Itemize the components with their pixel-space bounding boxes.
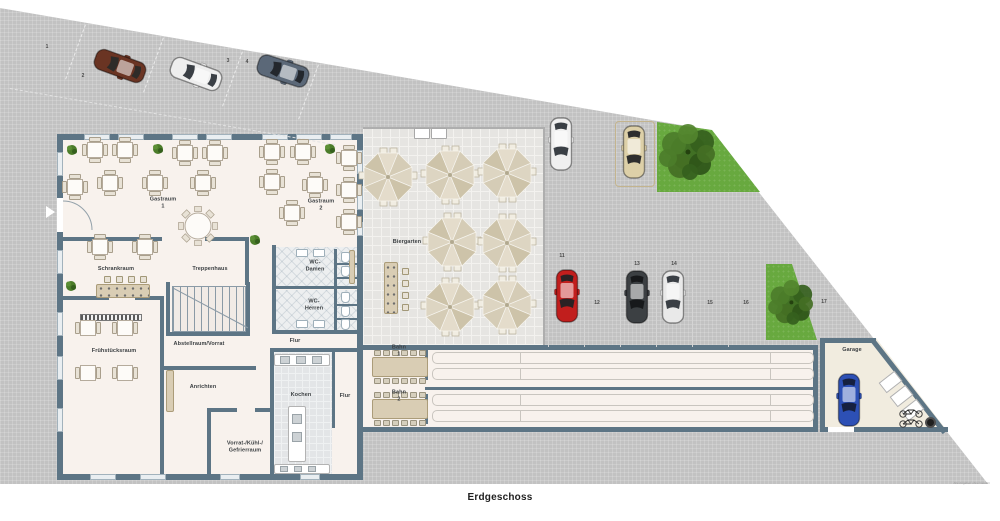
window [300, 474, 320, 480]
bar-counter [96, 284, 150, 298]
bahn-chair [419, 420, 426, 426]
parking-number-12: 12 [594, 300, 600, 306]
wall-segment [334, 263, 359, 265]
bahn-chair [392, 378, 399, 384]
dining-table [112, 137, 138, 163]
car-garage-blue [836, 372, 862, 428]
room-label-biergarten: Biergarten [393, 239, 422, 246]
wall-segment [425, 387, 815, 390]
wall-segment [363, 427, 813, 432]
cabinet [166, 370, 174, 412]
parking-number-2: 2 [82, 73, 85, 79]
parasol-table [422, 212, 482, 272]
parking-number-1: 1 [46, 44, 49, 50]
window [220, 474, 240, 480]
parking-divider [692, 252, 693, 347]
window [57, 152, 63, 176]
kitchen-appliance [312, 356, 322, 364]
wall-segment [164, 366, 256, 370]
parking-divider [548, 252, 549, 347]
counter-appliance [308, 466, 316, 472]
breakfast-table [112, 365, 138, 381]
biergarten-counter [384, 262, 398, 314]
bowling-lane-pin-line [770, 353, 771, 363]
bahn-chair [410, 378, 417, 384]
wall-segment [272, 286, 357, 289]
parking-number-17: 17 [821, 299, 827, 305]
bahn-chair [419, 392, 426, 398]
bowling-lane-pin-line [770, 411, 771, 421]
bahn-chair [374, 378, 381, 384]
room-label-flur-2: Flur [340, 393, 351, 400]
room-label-bahn-1: Bahn 1 [392, 345, 406, 358]
dining-table [302, 172, 328, 198]
dining-table [202, 140, 228, 166]
room-label-flur-1: Flur [290, 338, 301, 345]
dining-table [336, 209, 362, 235]
window [57, 312, 63, 336]
dining-table [190, 170, 216, 196]
parking-number-4: 4 [246, 59, 249, 65]
bowling-lane-foul-line [520, 411, 521, 421]
window [90, 474, 116, 480]
bar-stool [128, 276, 135, 283]
wc-sink [296, 249, 308, 257]
bowling-lane-foul-line [520, 395, 521, 405]
parasol-table [420, 277, 480, 337]
room-label-gastraum-2: Gastraum 2 [308, 199, 334, 212]
parking-number-15: 15 [707, 300, 713, 306]
potted-plant [323, 142, 337, 156]
stove-icon [292, 414, 302, 424]
room-label-treppenhaus: Treppenhaus [192, 266, 227, 273]
bahn-table [372, 357, 428, 377]
door-swing-arc [63, 200, 93, 230]
bowling-lane [432, 368, 814, 380]
parking-divider [728, 252, 729, 347]
car-space-11-red [554, 268, 580, 324]
window [57, 408, 63, 432]
car-top-white [548, 116, 574, 172]
wc-toilet [341, 252, 350, 263]
wall-segment [820, 338, 876, 343]
parasol-table [477, 275, 537, 335]
dining-table [62, 174, 88, 200]
floor-plan: Gastraum 1Gastraum 2SchrankraumTreppenha… [0, 0, 1000, 521]
bar-stool [140, 276, 147, 283]
bahn-chair [419, 350, 426, 356]
wall-segment [166, 332, 250, 336]
watermark-text: Alle Angaben ohne Gewähr [953, 482, 990, 485]
parasol-table [420, 145, 480, 205]
entrance-arrow-icon [46, 206, 55, 218]
dining-table [259, 139, 285, 165]
bahn-chair [374, 350, 381, 356]
room-label-wc-herren: WC-Herren [305, 299, 323, 312]
parking-number-13: 13 [634, 261, 640, 267]
wc-toilet [341, 292, 350, 303]
room-label-wc-damen: WC-Damen [306, 260, 325, 273]
bahn-chair [410, 350, 417, 356]
bahn-chair [392, 420, 399, 426]
parking-divider [656, 252, 657, 347]
room-label-schrankraum: Schrankraum [98, 266, 134, 273]
dining-table [172, 140, 198, 166]
parking-divider [584, 252, 585, 347]
parasol-table [477, 213, 537, 273]
wall-segment [270, 348, 360, 352]
dining-table [87, 234, 113, 260]
room-label-abstellraum-vorrat: Abstellraum/Vorrat [174, 341, 225, 348]
wall-segment [160, 296, 164, 476]
bahn-chair [383, 378, 390, 384]
bahn-chair [410, 392, 417, 398]
parking-row-line [548, 252, 763, 253]
parasol-table [358, 147, 418, 207]
dining-table [142, 170, 168, 196]
bahn-chair [401, 378, 408, 384]
bowling-lane [432, 410, 814, 422]
parasol-table [477, 143, 537, 203]
biergarten-stool [402, 280, 409, 287]
bowling-lane-foul-line [520, 369, 521, 379]
parking-number-16: 16 [743, 300, 749, 306]
bowling-lane [432, 394, 814, 406]
window [57, 356, 63, 380]
wall-segment [207, 408, 211, 478]
wall-segment [363, 345, 818, 350]
bahn-chair [383, 420, 390, 426]
potted-plant [151, 142, 165, 156]
bar-stool [104, 276, 111, 283]
room-label-garage: Garage [842, 347, 862, 354]
bowling-lane-pin-line [770, 395, 771, 405]
wc-toilet [341, 266, 350, 277]
wall-segment [332, 352, 335, 428]
potted-plant [64, 279, 78, 293]
parking-divider [620, 252, 621, 347]
counter-appliance [294, 466, 302, 472]
dining-table [290, 139, 316, 165]
bahn-chair [419, 378, 426, 384]
wc-sink [296, 320, 308, 328]
car-space-14-white [660, 269, 686, 325]
parking-number-11: 11 [559, 253, 564, 259]
round-table [176, 204, 220, 248]
biergarten-stool [402, 268, 409, 275]
biergarten-fence-top [363, 127, 545, 129]
tire-icon [925, 417, 936, 428]
bahn-chair [374, 420, 381, 426]
room-label-kochen: Kochen [291, 392, 312, 399]
page-title: Erdgeschoss [467, 492, 532, 503]
breakfast-table [75, 365, 101, 381]
room-label-bahn-2: Bahn 2 [392, 390, 406, 403]
dining-table [132, 234, 158, 260]
biergarten-bench [431, 128, 447, 139]
bar-stool [116, 276, 123, 283]
bush-right [761, 272, 822, 333]
bahn-chair [401, 420, 408, 426]
tree-top [650, 114, 726, 190]
window [57, 250, 63, 274]
room-label-fruehstuecksraum: Frühstücksraum [92, 348, 137, 355]
dining-table [82, 137, 108, 163]
room-label-vorrat-kuehl-gefrierraum: Vorrat-/Kühl-/ Gefrierraum [227, 441, 263, 454]
dining-table [279, 200, 305, 226]
bowling-lane-foul-line [520, 353, 521, 363]
stove-icon [292, 432, 302, 442]
kitchen-appliance [296, 356, 306, 364]
bahn-chair [374, 392, 381, 398]
wc-toilet [341, 306, 350, 317]
wall-segment [207, 408, 237, 412]
wc-sink [313, 320, 325, 328]
wall-segment [334, 277, 359, 279]
van-top-beige [621, 124, 647, 180]
bowling-lane-pin-line [770, 369, 771, 379]
dining-table [259, 169, 285, 195]
parking-number-14: 14 [671, 261, 677, 267]
biergarten-stool [402, 292, 409, 299]
counter-appliance [280, 466, 288, 472]
wall-segment [820, 338, 825, 432]
potted-plant [248, 233, 262, 247]
bicycle-icon [898, 417, 924, 429]
bowling-lane [432, 352, 814, 364]
wc-sink [313, 249, 325, 257]
wc-toilet [341, 319, 350, 330]
biergarten-fence-right [543, 127, 545, 345]
breakfast-table [75, 320, 101, 336]
wall-segment [166, 282, 170, 336]
breakfast-table [112, 320, 138, 336]
wall-segment [272, 330, 357, 334]
bahn-chair [383, 392, 390, 398]
biergarten-bench [414, 128, 430, 139]
window [140, 474, 166, 480]
potted-plant [65, 143, 79, 157]
bahn-chair [410, 420, 417, 426]
dining-table [97, 170, 123, 196]
wall-segment [272, 245, 276, 334]
room-label-gastraum-1: Gastraum 1 [150, 197, 176, 210]
bahn-chair [383, 350, 390, 356]
biergarten-stool [402, 304, 409, 311]
car-space-13-dark [624, 269, 650, 325]
kitchen-appliance [280, 356, 290, 364]
room-label-anrichten: Anrichten [190, 384, 217, 391]
window [330, 134, 352, 140]
parking-number-3: 3 [227, 58, 230, 64]
